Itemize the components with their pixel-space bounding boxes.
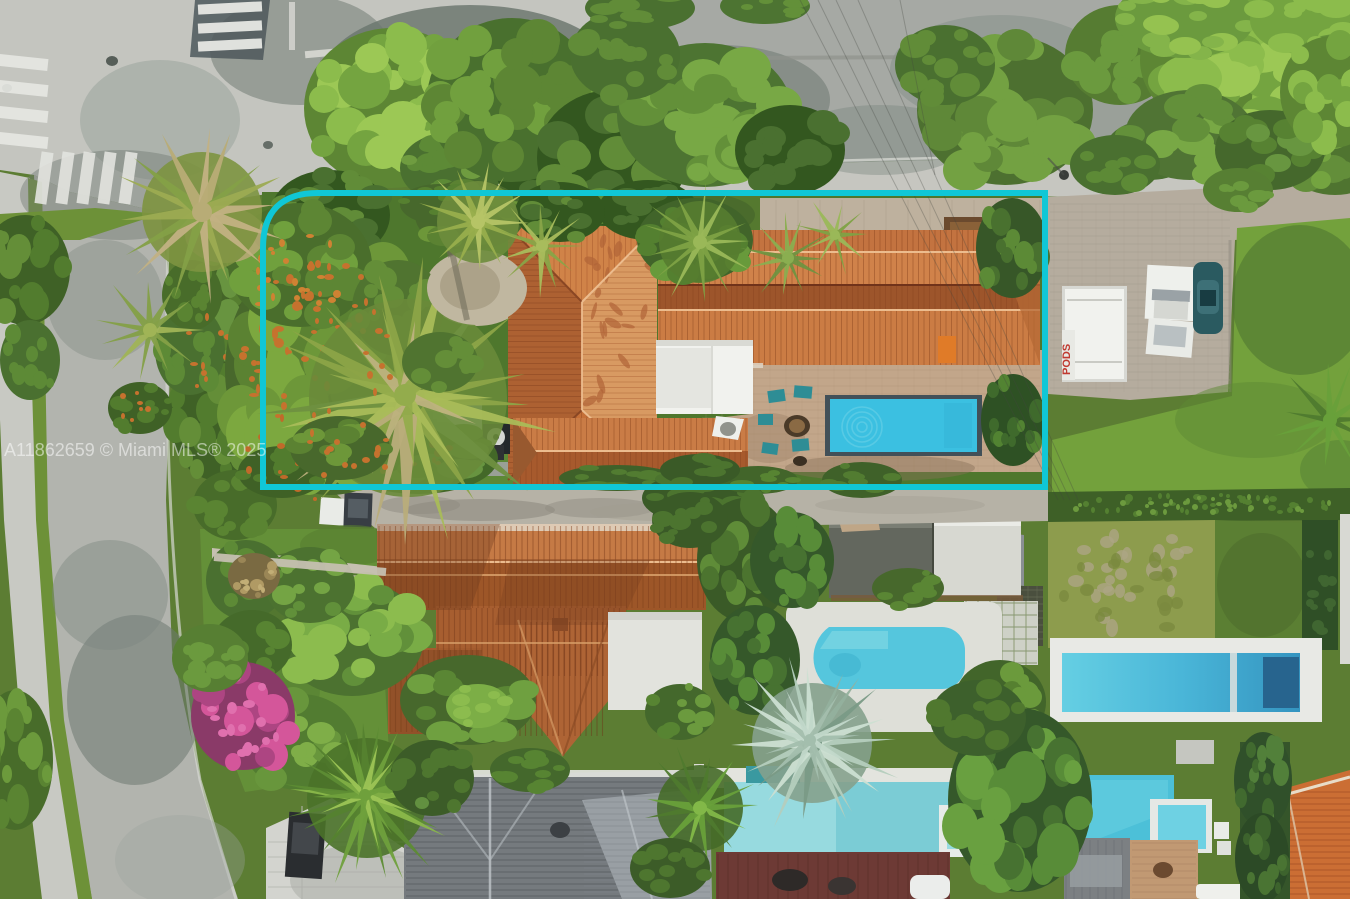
- svg-text:A11862659 © Miami MLS® 2025: A11862659 © Miami MLS® 2025: [4, 440, 266, 460]
- svg-text:PODS: PODS: [1061, 344, 1073, 375]
